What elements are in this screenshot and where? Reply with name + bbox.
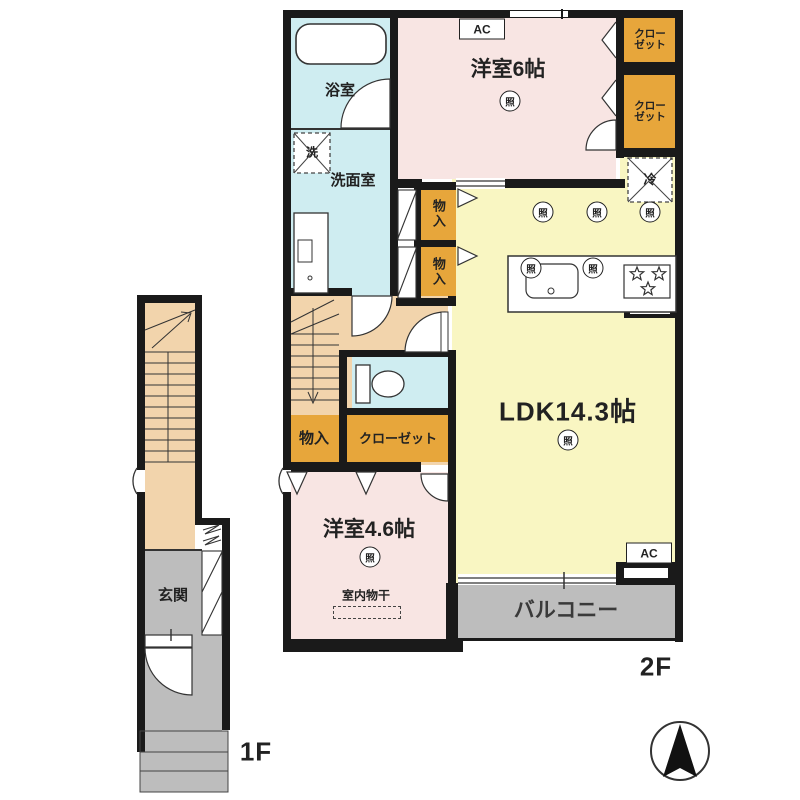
label-indoor-drying: 室内物干 (342, 590, 390, 603)
ac-box-bedroom6: AC (459, 19, 505, 40)
label-bathroom: 浴室 (325, 83, 355, 99)
light-symbol: 照 (533, 202, 554, 223)
closet-bifold-doors (586, 22, 616, 150)
label-balcony: バルコニー (514, 600, 619, 622)
north-compass (651, 722, 709, 780)
light-symbol: 照 (583, 258, 604, 279)
fixtures-layer (0, 0, 800, 800)
sliding-door-balcony (458, 572, 616, 589)
door-arc-bedroom46 (421, 474, 448, 501)
toilet-fixture (356, 365, 404, 403)
label-closet-top-2: クロー ゼット (634, 101, 666, 123)
label-bedroom6: 洋室6帖 (471, 59, 546, 81)
sliding-door-bedroom6 (456, 178, 505, 189)
label-fridge: 冷 (643, 173, 656, 187)
door-arc-washroom (352, 296, 392, 336)
door-arc-ldk (405, 312, 445, 352)
label-2f: 2F (640, 653, 672, 680)
vanity-unit (294, 213, 328, 293)
door-leaf-ldk (441, 312, 448, 352)
label-washroom: 洗面室 (330, 173, 375, 189)
light-symbol: 照 (558, 430, 579, 451)
label-storage-col-1: 物入 (431, 199, 445, 229)
door-arc-2f-exterior (279, 468, 283, 494)
label-closet-top-1: クロー ゼット (634, 29, 666, 51)
indoor-drying-box (333, 606, 401, 619)
bathtub (296, 24, 386, 64)
label-storage-lower: 物入 (299, 431, 329, 447)
label-closet-lower: クローゼット (359, 432, 437, 446)
light-symbol: 照 (587, 202, 608, 223)
door-slot-1f-left (137, 470, 145, 492)
ac-label: AC (640, 546, 657, 560)
stairs-2f (291, 300, 339, 403)
light-symbol: 照 (360, 547, 381, 568)
light-symbol: 照 (521, 258, 542, 279)
label-storage-col-2: 物入 (431, 257, 445, 287)
entrance-door (145, 629, 192, 695)
window-slot-top (510, 11, 568, 17)
label-1f: 1F (240, 738, 272, 765)
window-slot-balcony-side (624, 568, 668, 578)
ac-box-ldk: AC (626, 543, 672, 564)
light-symbol: 照 (500, 91, 521, 112)
linen-shelf (398, 190, 416, 298)
door-arc-1f-exterior (133, 468, 137, 494)
label-ldk: LDK14.3帖 (499, 398, 637, 425)
entrance-steps-lines (140, 731, 228, 792)
meter-box (203, 525, 221, 545)
stairs-1f (145, 310, 195, 462)
floorplan-canvas: 浴室 洗 洗面室 洋室6帖 AC クロー ゼット クロー ゼット 冷 物入 物入… (0, 0, 800, 800)
label-bedroom46: 洋室4.6帖 (323, 519, 415, 541)
label-washer: 洗 (306, 147, 318, 160)
label-entrance: 玄関 (158, 588, 188, 604)
shoe-cabinet (202, 551, 222, 635)
light-symbol: 照 (640, 202, 661, 223)
ac-label: AC (473, 22, 490, 36)
